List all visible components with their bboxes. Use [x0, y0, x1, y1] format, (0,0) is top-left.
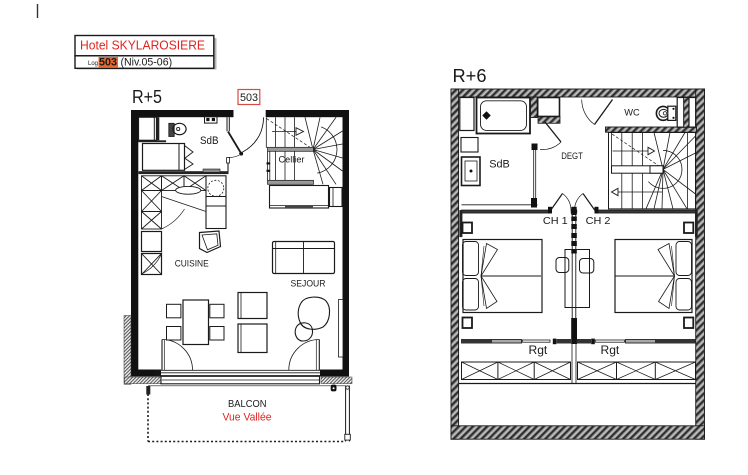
svg-text:503: 503	[240, 92, 258, 104]
svg-text:Cellier: Cellier	[279, 155, 305, 165]
svg-text:R+6: R+6	[453, 65, 487, 86]
svg-text:CH 2: CH 2	[586, 215, 611, 227]
svg-text:SdB: SdB	[489, 159, 510, 171]
svg-text:SdB: SdB	[200, 135, 219, 147]
svg-text:SEJOUR: SEJOUR	[291, 279, 326, 289]
svg-text:WC: WC	[624, 107, 640, 118]
svg-text:Vue Vallée: Vue Vallée	[223, 411, 272, 423]
svg-text:Rgt: Rgt	[601, 345, 621, 357]
svg-text:503: 503	[99, 56, 117, 68]
svg-text:CH 1: CH 1	[543, 215, 568, 227]
svg-text:R+5: R+5	[132, 86, 162, 107]
svg-text:Log: Log	[88, 61, 98, 67]
svg-text:BALCON: BALCON	[228, 398, 267, 410]
svg-text:CUISINE: CUISINE	[175, 259, 209, 269]
svg-text:Hotel SKYLAROSIERE: Hotel SKYLAROSIERE	[80, 39, 205, 53]
svg-text:(Niv.05-06): (Niv.05-06)	[121, 56, 173, 68]
svg-text:Rgt: Rgt	[529, 345, 549, 357]
svg-text:DEGT: DEGT	[561, 151, 583, 161]
